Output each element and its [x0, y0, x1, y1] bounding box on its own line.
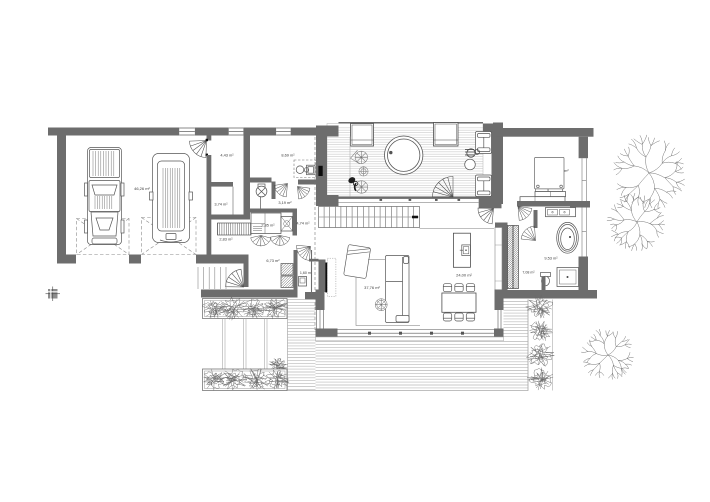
svg-text:9,53 m²: 9,53 m² [544, 256, 558, 261]
svg-text:4,74 m²: 4,74 m² [296, 221, 310, 226]
svg-text:2,85 m²: 2,85 m² [261, 223, 275, 228]
svg-text:7,08 m²: 7,08 m² [522, 271, 535, 275]
svg-text:46,26 m²: 46,26 m² [134, 186, 150, 191]
svg-text:3,74 m²: 3,74 m² [214, 202, 228, 207]
svg-text:24,00 m²: 24,00 m² [456, 273, 472, 278]
svg-text:3,19 m²: 3,19 m² [278, 200, 292, 205]
svg-text:37,76 m²: 37,76 m² [364, 285, 380, 290]
svg-text:8,69 m²: 8,69 m² [281, 153, 295, 158]
svg-text:6,73 m²: 6,73 m² [266, 258, 280, 263]
svg-text:2,83 m²: 2,83 m² [219, 237, 233, 242]
svg-text:4,43 m²: 4,43 m² [220, 153, 234, 158]
svg-text:1,60 m²: 1,60 m² [300, 271, 313, 275]
